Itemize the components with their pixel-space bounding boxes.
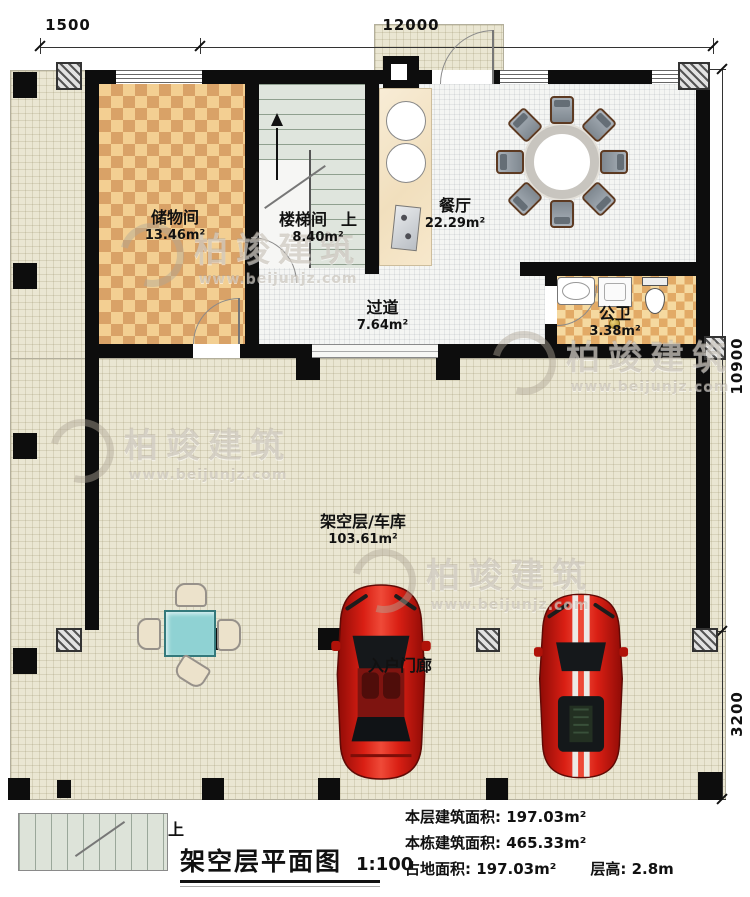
plan-title-text: 架空层平面图 xyxy=(180,847,342,876)
dining-chair xyxy=(496,150,524,174)
room-name: 储物间 xyxy=(120,208,230,228)
room-area: 22.29m² xyxy=(412,216,498,232)
dining-chair xyxy=(550,96,574,124)
column-bump xyxy=(296,358,320,380)
column xyxy=(698,772,722,800)
garage-opening-beam xyxy=(312,344,438,358)
stat-label: 本层建筑面积: xyxy=(405,808,501,826)
pier xyxy=(476,628,500,652)
sink xyxy=(557,277,595,305)
plan-up-label: 上 xyxy=(168,816,184,840)
dining-chair xyxy=(550,200,574,228)
column xyxy=(318,778,340,800)
window xyxy=(500,70,548,84)
column xyxy=(13,433,37,459)
room-name: 过道 xyxy=(330,298,435,318)
car-red-striped xyxy=(533,587,629,785)
stat-label: 层高: xyxy=(590,860,626,878)
stair-up-label: 上 xyxy=(341,210,357,229)
pier xyxy=(56,628,82,652)
toilet-tank xyxy=(642,277,668,286)
patio-chair xyxy=(217,619,241,651)
pier xyxy=(56,62,82,90)
stat-value: 197.03m² xyxy=(506,808,586,826)
window xyxy=(116,70,202,84)
room-name: 架空层/车库 xyxy=(288,512,438,532)
room-area: 8.40m² xyxy=(258,230,378,246)
room-area: 7.64m² xyxy=(330,318,435,334)
stat-label: 占地面积: xyxy=(405,860,471,878)
stat-line: 占地面积: 197.03m²层高: 2.8m xyxy=(405,856,674,882)
pier xyxy=(678,62,710,90)
counter-round-bottom xyxy=(386,143,426,183)
column xyxy=(13,72,37,98)
column xyxy=(13,263,37,289)
dim-right-upper: 10900 xyxy=(728,336,746,396)
stats-block: 本层建筑面积: 197.03m² 本栋建筑面积: 465.33m² 占地面积: … xyxy=(405,804,674,882)
title-underline xyxy=(180,880,380,883)
room-name: 公卫 xyxy=(570,304,660,324)
dim-line-right-lower xyxy=(722,632,723,800)
wall-storage-stair xyxy=(245,84,259,344)
dim-right-lower: 3200 xyxy=(728,684,746,744)
patio-chair xyxy=(137,618,161,650)
patio-chair xyxy=(175,583,207,607)
title-underline-secondary xyxy=(180,886,380,887)
pier xyxy=(692,628,718,652)
dining-chair xyxy=(600,150,628,174)
entry-door-leaf xyxy=(492,30,494,84)
column-bump xyxy=(436,358,460,380)
stat-label: 本栋建筑面积: xyxy=(405,834,501,852)
room-area: 13.46m² xyxy=(120,228,230,244)
room-name-row: 楼梯间上 xyxy=(258,210,378,230)
patio-table xyxy=(164,610,216,657)
storage-door-opening xyxy=(193,344,240,358)
column xyxy=(202,778,224,800)
stat-value: 465.33m² xyxy=(506,834,586,852)
room-name: 楼梯间 xyxy=(279,210,327,229)
room-label-stair: 楼梯间上 8.40m² xyxy=(258,210,378,246)
room-label-storage: 储物间 13.46m² xyxy=(120,208,230,244)
counter-round-top xyxy=(386,101,426,141)
round-dining-table xyxy=(525,125,599,199)
bath-door-opening xyxy=(545,286,557,324)
stat-line: 本栋建筑面积: 465.33m² xyxy=(405,830,674,856)
room-label-dining: 餐厅 22.29m² xyxy=(412,196,498,232)
room-label-garage: 架空层/车库 103.61m² xyxy=(288,512,438,548)
stair-arrow-shaft xyxy=(276,128,278,180)
column xyxy=(8,778,30,800)
dim-line-top xyxy=(40,47,714,48)
room-area: 103.61m² xyxy=(288,532,438,548)
column xyxy=(57,780,71,798)
column xyxy=(486,778,508,800)
room-name: 餐厅 xyxy=(412,196,498,216)
car-red xyxy=(330,583,432,781)
stat-value: 2.8m xyxy=(632,860,674,878)
wall-dining-bath xyxy=(520,262,710,276)
plan-title: 架空层平面图1:100 xyxy=(180,842,413,878)
dim-top-left: 1500 xyxy=(38,16,98,34)
storage-door-leaf xyxy=(238,298,240,344)
room-label-corridor: 过道 7.64m² xyxy=(330,298,435,334)
room-area: 3.38m² xyxy=(570,324,660,340)
stair-divider xyxy=(309,150,311,268)
porch-column-notch xyxy=(391,64,407,80)
floor-plan-canvas: 1500 12000 10900 3200 xyxy=(0,0,750,897)
appliance-knob-icon xyxy=(401,214,408,221)
washing-machine xyxy=(598,277,632,307)
room-label-porch: 入户门廊 xyxy=(345,652,455,676)
stat-value: 197.03m² xyxy=(476,860,556,878)
stair-up-arrow-icon xyxy=(271,113,283,126)
appliance-knob-icon xyxy=(405,233,412,240)
dim-top-main: 12000 xyxy=(376,16,446,34)
room-label-bath: 公卫 3.38m² xyxy=(570,304,660,340)
column xyxy=(13,648,37,674)
pier xyxy=(704,336,726,360)
stat-line: 本层建筑面积: 197.03m² xyxy=(405,804,674,830)
